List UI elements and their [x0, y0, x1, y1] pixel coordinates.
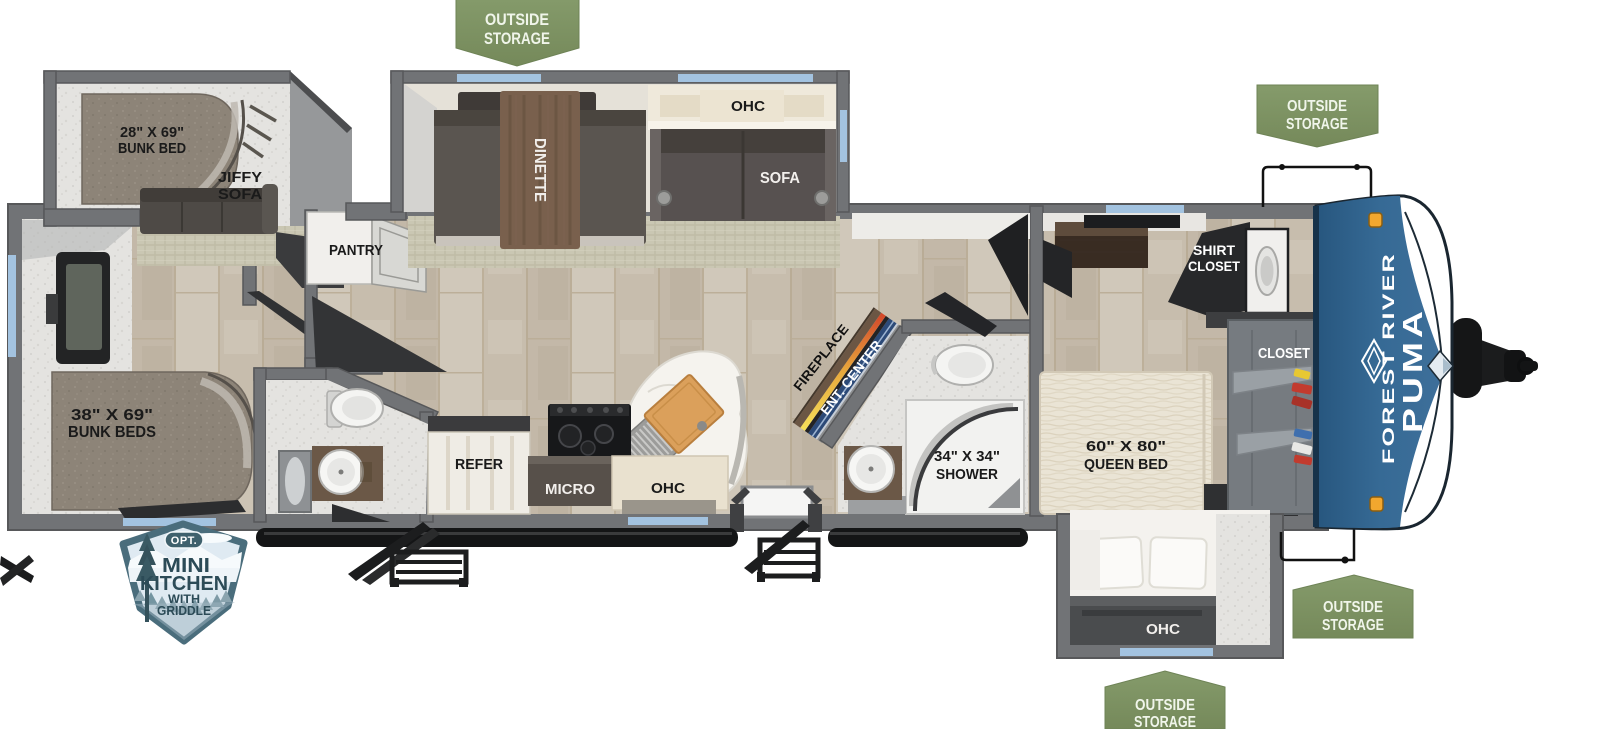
svg-text:OUTSIDE: OUTSIDE	[1323, 599, 1383, 616]
svg-text:SOFA: SOFA	[218, 187, 263, 203]
svg-text:FOREST RIVER: FOREST RIVER	[1380, 252, 1398, 464]
svg-text:STORAGE: STORAGE	[1134, 714, 1196, 729]
svg-text:KITCHEN: KITCHEN	[140, 573, 228, 595]
svg-text:OHC: OHC	[731, 99, 766, 115]
svg-text:JIFFY: JIFFY	[218, 170, 262, 186]
svg-text:GRIDDLE: GRIDDLE	[157, 603, 211, 618]
svg-text:28" X 69": 28" X 69"	[120, 125, 184, 141]
svg-text:OUTSIDE: OUTSIDE	[485, 10, 549, 29]
svg-text:STORAGE: STORAGE	[1322, 617, 1384, 634]
svg-text:SHOWER: SHOWER	[936, 466, 998, 483]
svg-text:PUMA: PUMA	[1397, 307, 1428, 433]
svg-text:BUNK BEDS: BUNK BEDS	[68, 424, 156, 441]
svg-text:SOFA: SOFA	[760, 170, 800, 187]
svg-text:OPT.: OPT.	[171, 535, 197, 547]
svg-text:MICRO: MICRO	[545, 482, 595, 498]
svg-text:60" X 80": 60" X 80"	[1086, 438, 1166, 455]
svg-text:STORAGE: STORAGE	[1286, 116, 1348, 133]
svg-text:REFER: REFER	[455, 456, 503, 473]
svg-text:34" X 34": 34" X 34"	[934, 448, 1000, 465]
svg-text:OUTSIDE: OUTSIDE	[1135, 697, 1195, 714]
svg-text:38" X 69": 38" X 69"	[71, 407, 153, 424]
svg-text:SHIRT: SHIRT	[1193, 242, 1235, 258]
svg-text:DINETTE: DINETTE	[531, 138, 548, 202]
svg-text:BUNK BED: BUNK BED	[118, 141, 186, 157]
svg-text:CLOSET: CLOSET	[1188, 258, 1240, 274]
svg-text:OHC: OHC	[1146, 622, 1181, 638]
svg-text:OUTSIDE: OUTSIDE	[1287, 98, 1347, 115]
svg-text:OHC: OHC	[651, 481, 686, 497]
svg-text:STORAGE: STORAGE	[484, 29, 550, 48]
svg-text:PANTRY: PANTRY	[329, 243, 383, 259]
svg-text:QUEEN BED: QUEEN BED	[1084, 456, 1168, 473]
svg-text:CLOSET: CLOSET	[1258, 346, 1310, 362]
